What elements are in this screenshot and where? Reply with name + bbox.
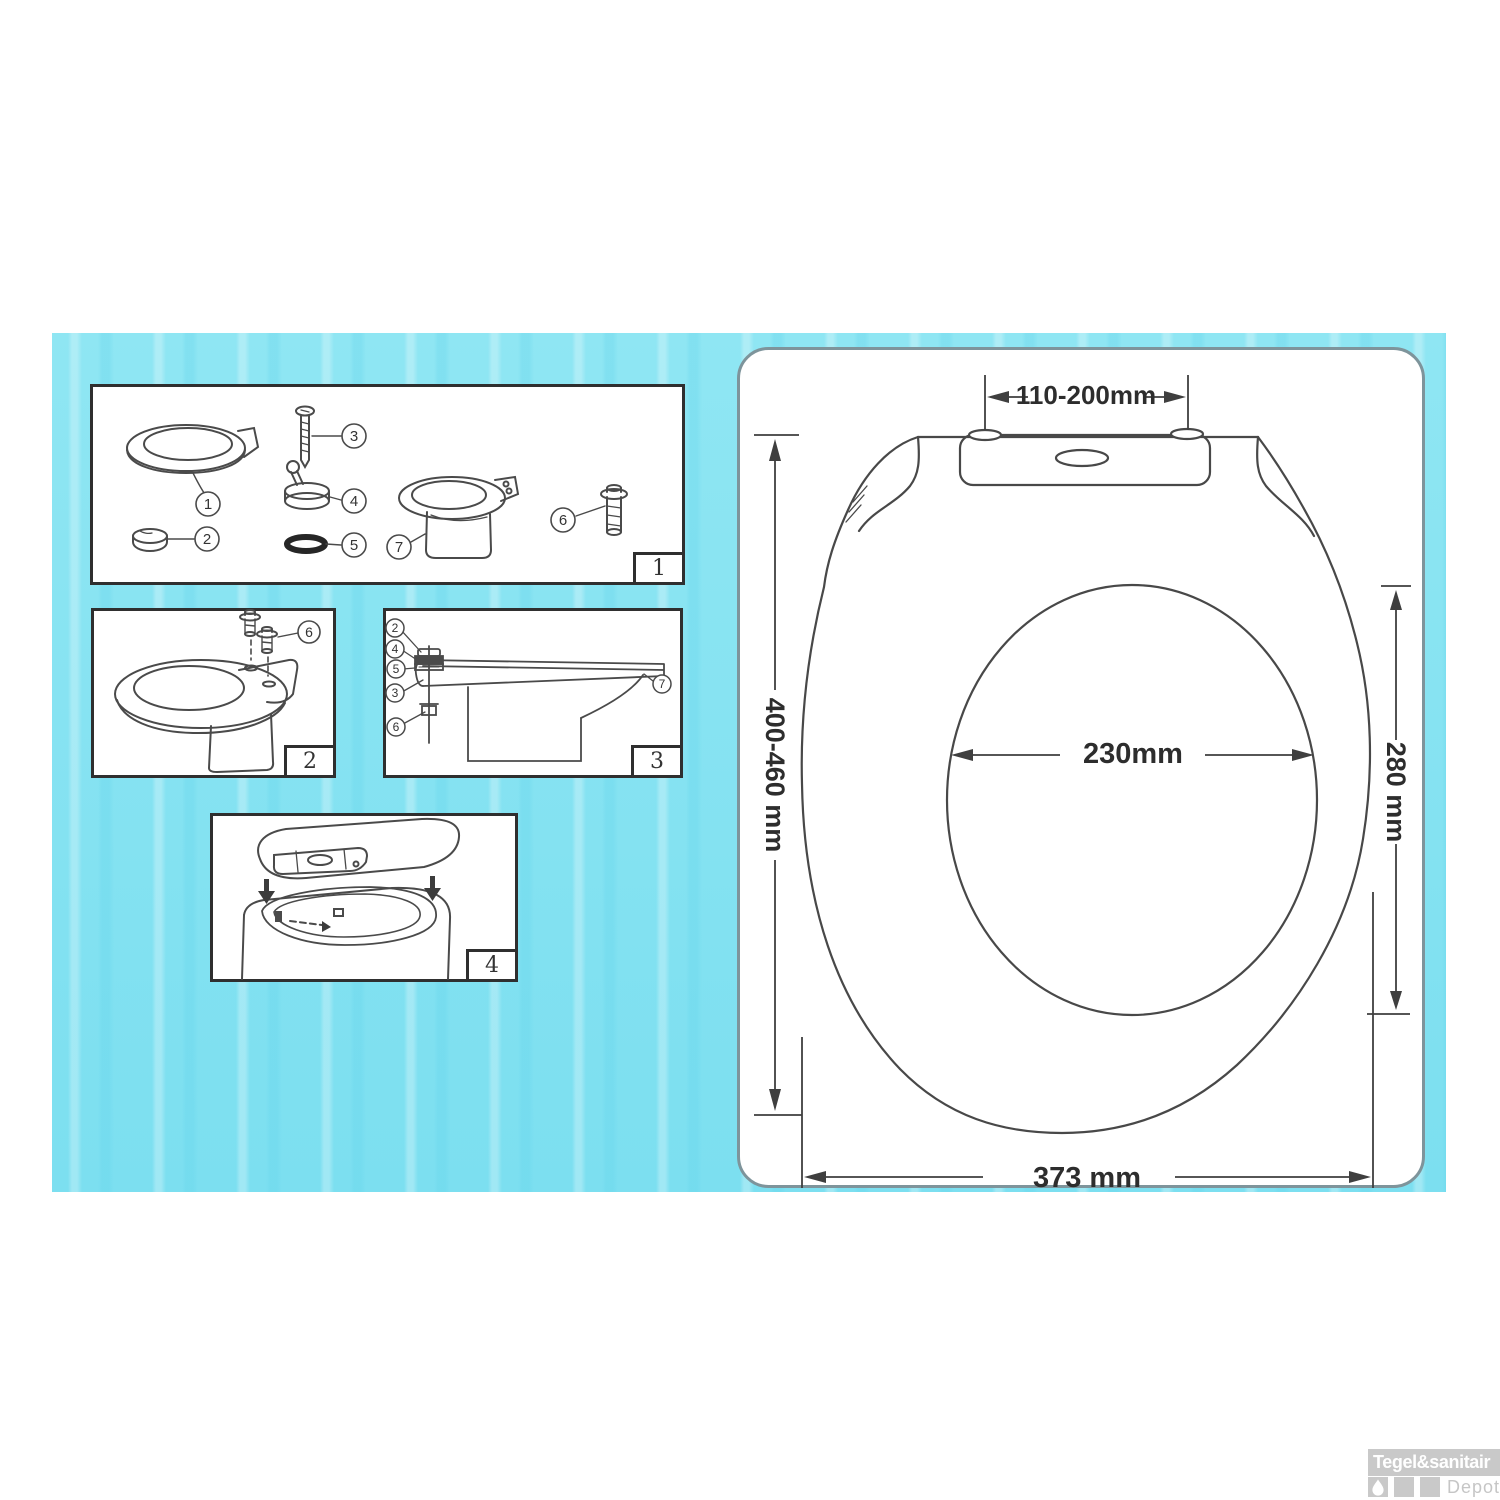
watermark-droplet-square [1368,1477,1388,1497]
dim-hinge-hole-spacing: 110-200mm [1006,380,1166,411]
panel3-number: 3 [650,751,664,773]
callout-2: 2 [203,531,211,548]
instruction-sheet-page: 1 2 3 4 5 6 7 1 [0,0,1500,1500]
right-bolt-hole [1171,429,1203,439]
callout-7: 7 [395,539,403,556]
callout-4: 4 [350,493,358,510]
callout-3: 3 [392,686,399,700]
dimension-sheet: 110-200mm 400-460 mm 280 mm 230mm 373 mm [737,347,1425,1188]
droplet-icon [1368,1477,1388,1497]
callout-7: 7 [659,677,666,691]
watermark-square [1420,1477,1440,1497]
panel4-number: 4 [485,955,499,977]
panel2-number-box: 2 [284,745,333,775]
instruction-panel-1: 1 2 3 4 5 6 7 1 [90,384,685,585]
watermark-brand: Tegel&sanitair [1368,1449,1500,1476]
panel4-number-box: 4 [466,949,515,979]
panel1-number-box: 1 [633,552,682,582]
callout-6: 6 [305,624,313,640]
left-bolt-hole [969,430,1001,440]
instruction-panel-3: 2 4 5 3 6 7 3 [383,608,683,778]
panel1-drawing: 1 2 3 4 5 6 7 [90,384,685,585]
callout-4: 4 [392,642,399,656]
callout-3: 3 [350,428,358,445]
instruction-panel-2: 6 2 [91,608,336,778]
callout-5: 5 [393,662,400,676]
callout-6: 6 [559,512,567,529]
watermark-square [1394,1477,1414,1497]
panel1-number: 1 [652,558,666,580]
callout-2: 2 [392,621,399,635]
panel2-number: 2 [303,751,317,773]
dim-seat-length: 400-460 mm [760,695,790,855]
panel1-border [92,386,684,584]
dim-cutout-width: 230mm [1063,738,1203,771]
watermark-sub: Depot [1447,1477,1500,1498]
panel3-number-box: 3 [631,745,680,775]
dim-cutout-depth: 280 mm [1382,732,1410,852]
dim-seat-width: 373 mm [1007,1162,1167,1195]
instruction-panel-4: 4 [210,813,518,982]
callout-1: 1 [204,496,212,513]
callout-5: 5 [350,537,358,554]
callout-6: 6 [393,720,400,734]
